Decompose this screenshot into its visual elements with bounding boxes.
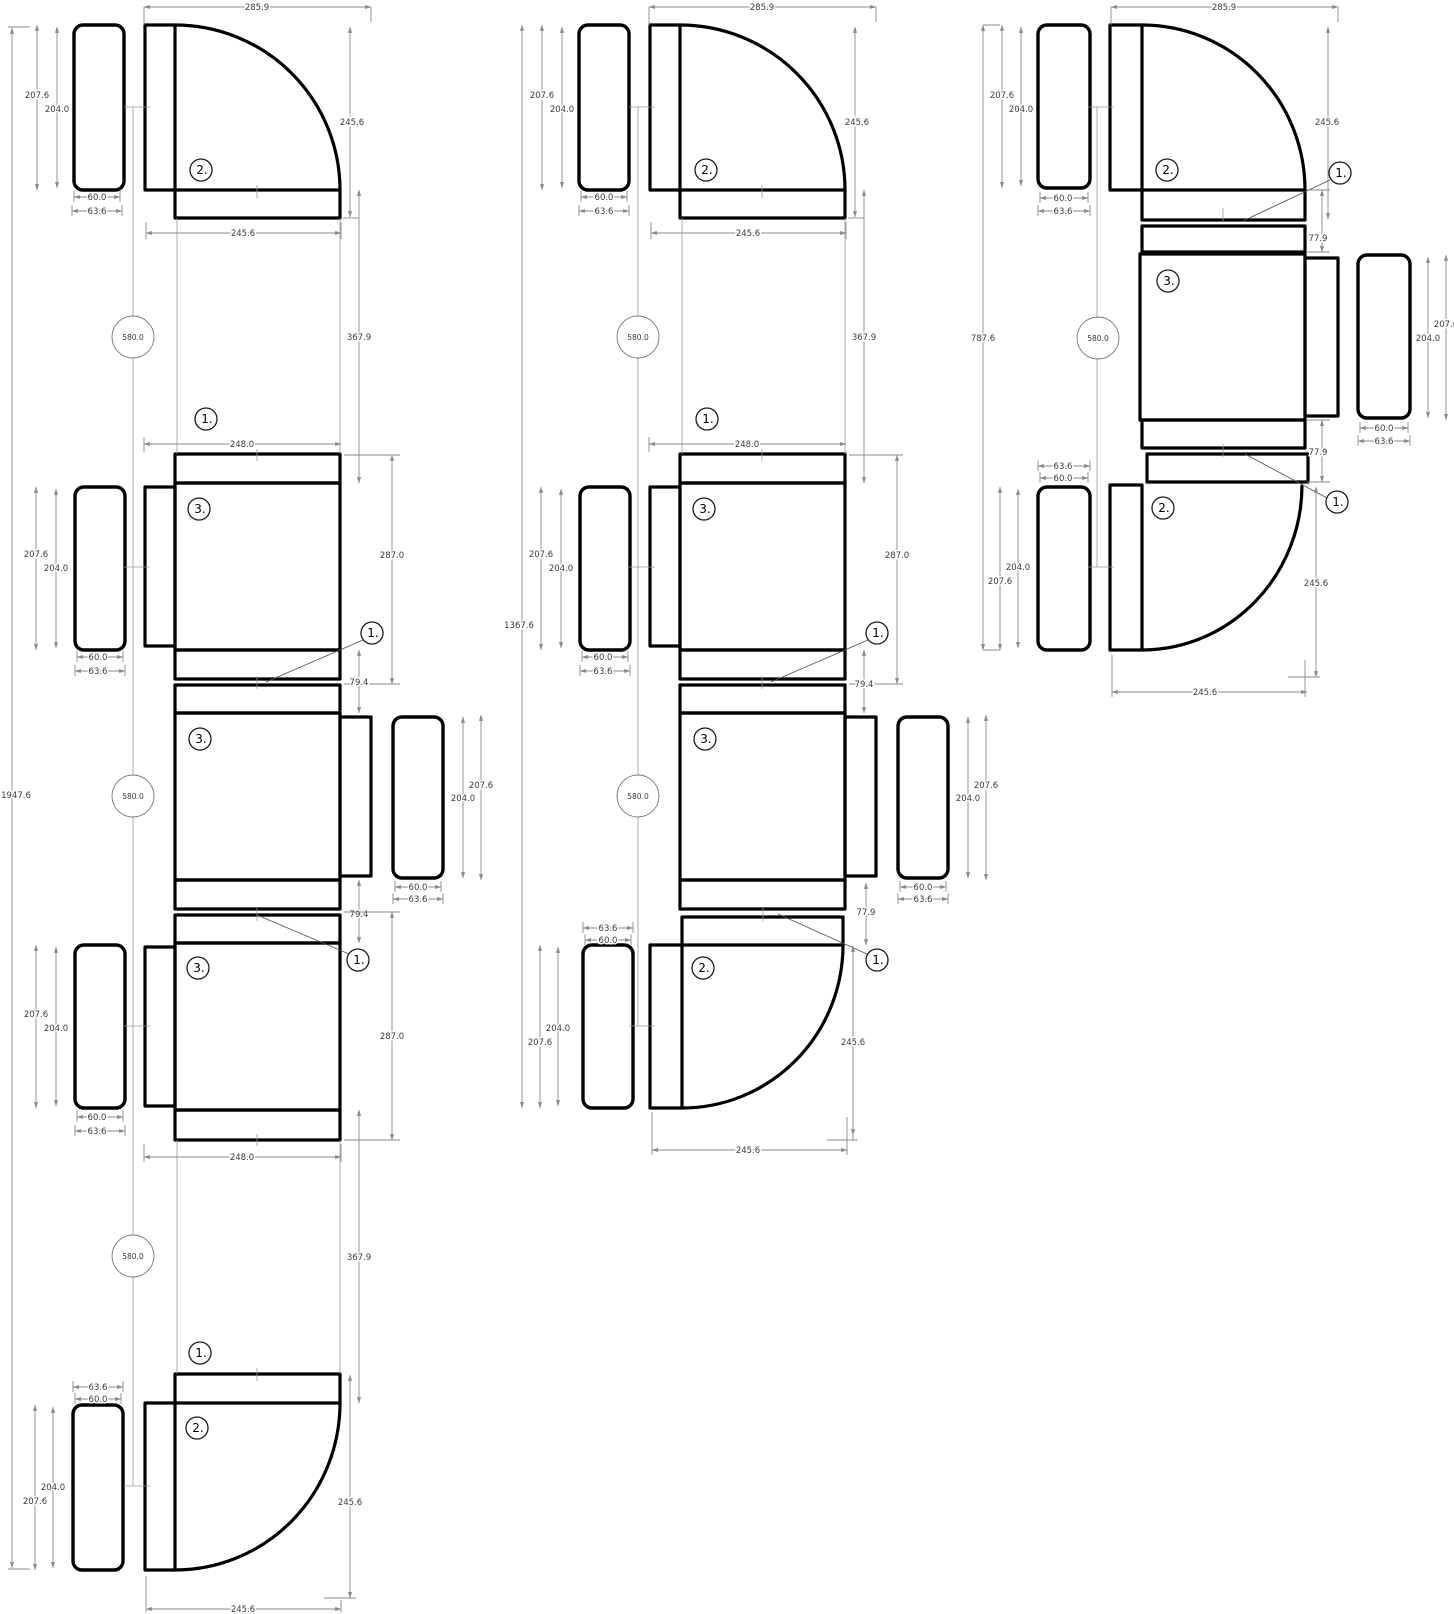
dim-label: 204.0 [1009, 105, 1033, 115]
dim-label: 207.6 [23, 1497, 47, 1507]
table-edge-strip [680, 880, 845, 909]
table-side-tab [1305, 258, 1338, 416]
dim-label: 207.6 [469, 781, 493, 791]
chair [74, 25, 124, 190]
dim-overall-left: 1947.6 [1, 27, 31, 1569]
dim-label: 63.6 [89, 1383, 108, 1393]
chair [73, 1405, 123, 1570]
table-side-tab [340, 717, 371, 876]
dim-label: 204.0 [1416, 334, 1440, 344]
table-edge-strip [175, 1110, 340, 1140]
table-side-tab [145, 487, 175, 646]
dim-corner-radius-right-bottom: 245.6 [827, 946, 865, 1140]
arrangement-middle: 580.0 580.0 1367.6 285.9 245.6 245.6 [504, 3, 998, 1156]
dim-label: 245.6 [338, 1498, 362, 1508]
dim-label: 63.6 [599, 924, 618, 934]
dim-label: 63.6 [914, 895, 933, 905]
dim-label: 245.6 [1315, 118, 1339, 128]
dim-label: 77.9 [1309, 234, 1328, 244]
balloon-label: 2. [698, 961, 709, 975]
gap-extension-lines [682, 185, 845, 921]
dim-label: 204.0 [41, 1483, 65, 1493]
balloon-label: 1. [1335, 166, 1346, 180]
dim-connector-top: 77.9 [1307, 190, 1330, 252]
dim-label: 77.9 [857, 908, 876, 918]
dim-label: 60.0 [1375, 424, 1394, 434]
dim-label: 60.0 [1054, 194, 1073, 204]
dim-label: 63.6 [594, 667, 613, 677]
dim-label: 63.6 [88, 207, 107, 217]
balloon-corner-table: 2. [695, 159, 717, 181]
dim-label: 204.0 [956, 794, 980, 804]
balloon-rect-table: 3. [694, 728, 716, 750]
table-edge-strip [1142, 226, 1305, 252]
centerline-left: 580.0 580.0 580.0 [112, 107, 154, 1486]
dim-table-depth-a: 287.0 [344, 455, 404, 684]
dim-label: 245.6 [340, 118, 364, 128]
dim-label: 77.9 [1309, 448, 1328, 458]
furniture-layout-drawing: 580.0 580.0 580.0 1947.6 285.9 245.6 [0, 0, 1454, 1614]
dim-connector-a: 79.4 [350, 650, 369, 713]
chair [1038, 487, 1090, 650]
chair [393, 717, 443, 878]
dim-overall-right: 787.6 [971, 25, 1000, 650]
table-edge-strip [1142, 420, 1305, 448]
dim-label: 204.0 [1006, 563, 1030, 573]
corner-table-strip [650, 25, 680, 190]
dim-corner-radius-right-bottom: 245.6 [1288, 487, 1328, 677]
centerline-right: 580.0 [1077, 107, 1119, 567]
dim-label: 787.6 [971, 334, 995, 344]
dim-label: 63.6 [1054, 462, 1073, 472]
dim-label: 1367.6 [504, 621, 534, 631]
dim-label: 63.6 [88, 1127, 107, 1137]
dim-connector-b: 77.9 [857, 883, 876, 945]
chair [583, 945, 633, 1108]
dim-label: 60.0 [89, 1395, 108, 1405]
dim-label: 60.0 [599, 936, 618, 946]
dim-label: 207.6 [529, 550, 553, 560]
table-edge-strip [175, 454, 340, 483]
table-side-tab [650, 487, 680, 646]
dim-label: 204.0 [550, 105, 574, 115]
dim-corner-radius-right: 245.6 [340, 27, 364, 218]
dim-label: 285.9 [1212, 3, 1236, 13]
dim-label: 60.0 [88, 193, 107, 203]
dim-table-depth: 287.0 [849, 455, 909, 684]
dim-label: 60.0 [914, 883, 933, 893]
corner-table-strip [1147, 454, 1308, 482]
corner-table-strip [1110, 25, 1142, 190]
chair [1358, 255, 1410, 418]
dim-label: 204.0 [45, 105, 69, 115]
balloon-label: 2. [1158, 501, 1169, 515]
arrangement-left: 580.0 580.0 580.0 1947.6 285.9 245.6 [1, 3, 493, 1614]
dim-label: 63.6 [595, 207, 614, 217]
corner-table-strip [145, 25, 175, 190]
dim-label: 204.0 [546, 1024, 570, 1034]
gap-extension-lines [177, 185, 340, 1381]
arrangement-right: 580.0 787.6 285.9 245.6 207.6 204.0 60.0 [971, 3, 1454, 698]
dim-label: 207.6 [1434, 320, 1454, 330]
chair [75, 487, 125, 650]
dim-label: 207.6 [974, 781, 998, 791]
dim-connector-bottom: 77.9 [1307, 420, 1330, 482]
dim-label: 60.0 [1054, 474, 1073, 484]
balloon-label: 1. [872, 626, 883, 640]
dim-corner-radius-bottom-bottom: 245.6 [652, 1112, 847, 1156]
dim-connector-a: 79.4 [855, 650, 874, 713]
balloon-label: 3. [700, 732, 711, 746]
dim-label: 60.0 [594, 653, 613, 663]
dim-label: 245.6 [231, 229, 255, 239]
balloon-rect-table: 3. [188, 498, 210, 520]
balloon-connector: 1. [266, 622, 383, 682]
leader-line [771, 640, 868, 682]
dim-label: 204.0 [44, 1024, 68, 1034]
dim-label: 245.6 [736, 1146, 760, 1156]
dim-label: 79.4 [350, 678, 369, 688]
pitch-value: 580.0 [122, 333, 144, 342]
balloon-label: 2. [1162, 163, 1173, 177]
ext-lines [827, 1135, 858, 1140]
leader-line [778, 914, 867, 954]
leader-line [1243, 180, 1330, 221]
dim-label: 207.6 [24, 550, 48, 560]
balloon-rect-table: 3. [187, 957, 209, 979]
dim-label: 1947.6 [1, 791, 31, 801]
corner-table-strip [1110, 485, 1142, 650]
balloon-label: 2. [196, 163, 207, 177]
balloon-label: 1. [1332, 495, 1343, 509]
dim-corner-width: 285.9 [649, 3, 876, 25]
dim-corner-radius-bottom-bottom: 245.6 [146, 1576, 341, 1614]
dim-label: 63.6 [409, 895, 428, 905]
balloon-corner-table: 2. [1156, 159, 1178, 181]
cad-drawing-canvas: 580.0 580.0 580.0 1947.6 285.9 245.6 [0, 0, 1454, 1614]
pitch-value: 580.0 [627, 792, 649, 801]
dim-module-gap: 367.9 [852, 190, 876, 483]
pitch-value: 580.0 [1087, 334, 1109, 343]
dim-overall-middle: 1367.6 [504, 25, 534, 1108]
balloon-corner-table: 2. [692, 957, 714, 979]
dim-label: 207.6 [25, 91, 49, 101]
dim-label: 287.0 [885, 551, 909, 561]
dim-corner-radius-right: 245.6 [845, 27, 869, 218]
balloon-label: 1. [872, 953, 883, 967]
dim-chair: 63.6 60.0 204.0 207.6 [528, 922, 633, 1108]
balloon-connector: 1. [696, 408, 718, 430]
balloon-label: 1. [353, 953, 364, 967]
ext-lines [849, 455, 903, 684]
balloon-rect-table: 3. [189, 728, 211, 750]
dim-corner-radius-bottom: 245.6 [651, 222, 846, 239]
dim-label: 248.0 [230, 1153, 254, 1163]
leader-line [1245, 454, 1327, 498]
dim-label: 60.0 [89, 653, 108, 663]
table-edge-strip [175, 685, 340, 713]
balloon-label: 1. [367, 626, 378, 640]
balloon-label: 2. [701, 163, 712, 177]
pitch-value: 580.0 [122, 792, 144, 801]
balloon-label: 1. [702, 412, 713, 426]
table-edge-strip [175, 650, 340, 679]
dim-table-depth-c: 287.0 [344, 912, 404, 1140]
pitch-value: 580.0 [627, 333, 649, 342]
dim-label: 367.9 [347, 333, 371, 343]
balloon-label: 3. [194, 502, 205, 516]
balloon-corner-table: 2. [1152, 497, 1174, 519]
dim-label: 79.4 [350, 910, 369, 920]
balloon-connector: 1. [195, 408, 217, 430]
dim-label: 287.0 [380, 1032, 404, 1042]
dim-label: 63.6 [1375, 437, 1394, 447]
dim-label: 248.0 [735, 440, 759, 450]
dim-label: 60.0 [595, 193, 614, 203]
dim-label: 60.0 [88, 1113, 107, 1123]
dim-label: 79.4 [855, 680, 874, 690]
corner-table-strip [175, 1374, 340, 1403]
dim-corner-width: 285.9 [144, 3, 371, 25]
dim-table-width-top: 248.0 [144, 437, 341, 452]
table-side-tab [145, 947, 175, 1106]
table-edge-strip [175, 915, 340, 943]
balloon-label: 2. [192, 1421, 203, 1435]
balloon-label: 1. [195, 1346, 206, 1360]
balloon-label: 1. [201, 412, 212, 426]
dim-label: 60.0 [409, 883, 428, 893]
balloon-label: 3. [1163, 274, 1174, 288]
dim-label: 63.6 [1054, 207, 1073, 217]
balloon-connector: 1. [771, 622, 888, 682]
dim-corner-width: 285.9 [1111, 3, 1338, 25]
chair [1038, 25, 1090, 188]
dim-label: 245.6 [231, 1605, 255, 1614]
dim-label: 207.6 [528, 1038, 552, 1048]
dim-corner-radius-right-bottom: 245.6 [324, 1375, 362, 1598]
chair [898, 717, 948, 878]
dim-label: 245.6 [1193, 688, 1217, 698]
dim-module-gap-top: 367.9 [347, 190, 371, 483]
chair [75, 945, 125, 1108]
balloon-label: 3. [195, 732, 206, 746]
dim-label: 207.6 [990, 91, 1014, 101]
dim-label: 367.9 [347, 1253, 371, 1263]
centerline-middle: 580.0 580.0 [617, 107, 659, 1026]
corner-table-strip [680, 190, 845, 218]
chair [580, 487, 630, 650]
balloon-rect-table: 3. [693, 498, 715, 520]
dim-corner-radius-bottom: 245.6 [146, 222, 341, 239]
leader-line [266, 640, 363, 682]
dim-module-gap-bottom: 367.9 [347, 1110, 371, 1403]
table-edge-strip [175, 880, 340, 909]
dim-label: 204.0 [44, 564, 68, 574]
dim-label: 207.6 [530, 91, 554, 101]
dim-corner-radius-bottom: 245.6 [1112, 655, 1307, 698]
dim-table-width-bottom: 248.0 [144, 1144, 341, 1163]
corner-table-strip [682, 917, 843, 945]
balloon-rect-table: 3. [1157, 270, 1179, 292]
corner-table-strip [650, 945, 682, 1108]
dim-label: 285.9 [750, 3, 774, 13]
balloon-connector: 1. [189, 1342, 211, 1364]
dim-label: 245.6 [841, 1038, 865, 1048]
balloon-corner-table: 2. [186, 1417, 208, 1439]
dim-label: 204.0 [451, 794, 475, 804]
dim-label: 287.0 [380, 551, 404, 561]
dim-label: 204.0 [549, 564, 573, 574]
leader-line [257, 915, 349, 954]
dim-connector-b: 79.4 [350, 880, 369, 943]
corner-table-strip [145, 1403, 175, 1570]
dim-label: 245.6 [736, 229, 760, 239]
dim-label: 63.6 [89, 667, 108, 677]
dim-label: 367.9 [852, 333, 876, 343]
table-edge-strip [680, 650, 845, 679]
balloon-connector: 1. [778, 914, 888, 971]
dim-label: 285.9 [245, 3, 269, 13]
chair [579, 25, 629, 190]
dim-label: 207.6 [988, 577, 1012, 587]
table-edge-strip [680, 454, 845, 483]
corner-table-strip [1142, 190, 1305, 220]
table-side-tab [845, 717, 876, 876]
dim-label: 245.6 [845, 118, 869, 128]
table-edge-strip [680, 685, 845, 713]
balloon-corner-table: 2. [190, 159, 212, 181]
balloon-label: 3. [193, 961, 204, 975]
dim-label: 245.6 [1304, 579, 1328, 589]
balloon-label: 3. [699, 502, 710, 516]
corner-table-strip [175, 190, 340, 218]
dim-label: 248.0 [230, 440, 254, 450]
dim-table-width: 248.0 [649, 437, 846, 452]
pitch-value: 580.0 [122, 1252, 144, 1261]
dim-label: 207.6 [24, 1010, 48, 1020]
